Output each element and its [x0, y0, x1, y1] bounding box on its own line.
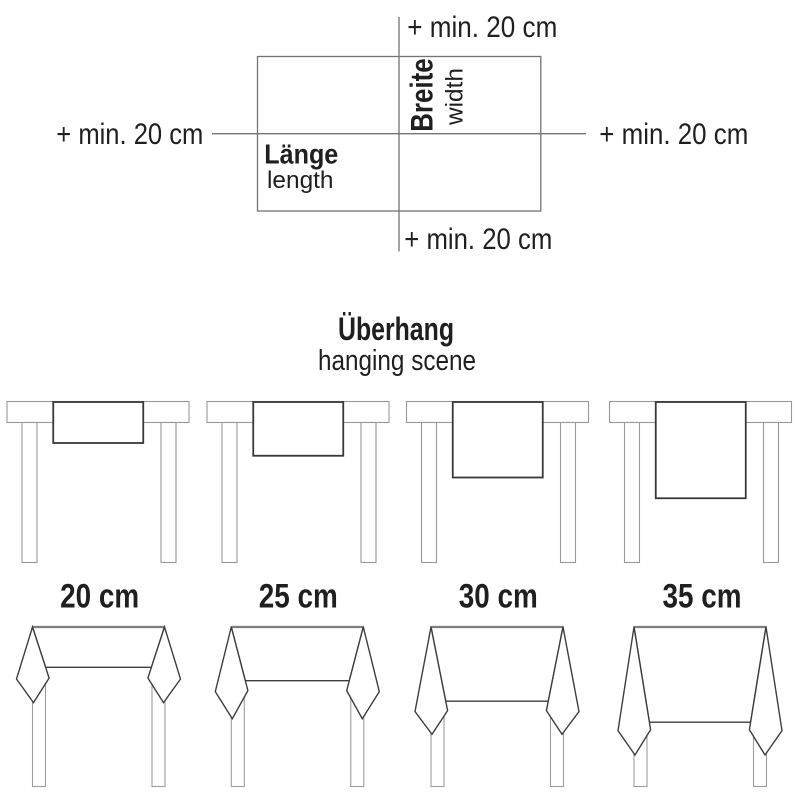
svg-text:Breite: Breite	[404, 58, 440, 132]
svg-text:+ min. 20 cm: + min. 20 cm	[599, 118, 748, 151]
svg-text:+ min. 20 cm: + min. 20 cm	[56, 118, 203, 151]
svg-text:+ min. 20 cm: + min. 20 cm	[407, 11, 557, 44]
svg-text:35 cm: 35 cm	[663, 578, 742, 616]
svg-text:+ min. 20 cm: + min. 20 cm	[404, 223, 552, 256]
svg-text:30 cm: 30 cm	[459, 578, 538, 616]
svg-text:width: width	[441, 68, 468, 126]
svg-text:Länge: Länge	[264, 139, 338, 170]
svg-text:20 cm: 20 cm	[60, 578, 139, 616]
svg-text:Überhang: Überhang	[338, 311, 454, 347]
svg-text:25 cm: 25 cm	[259, 578, 338, 616]
svg-text:hanging scene: hanging scene	[318, 345, 476, 377]
svg-text:length: length	[267, 167, 334, 194]
